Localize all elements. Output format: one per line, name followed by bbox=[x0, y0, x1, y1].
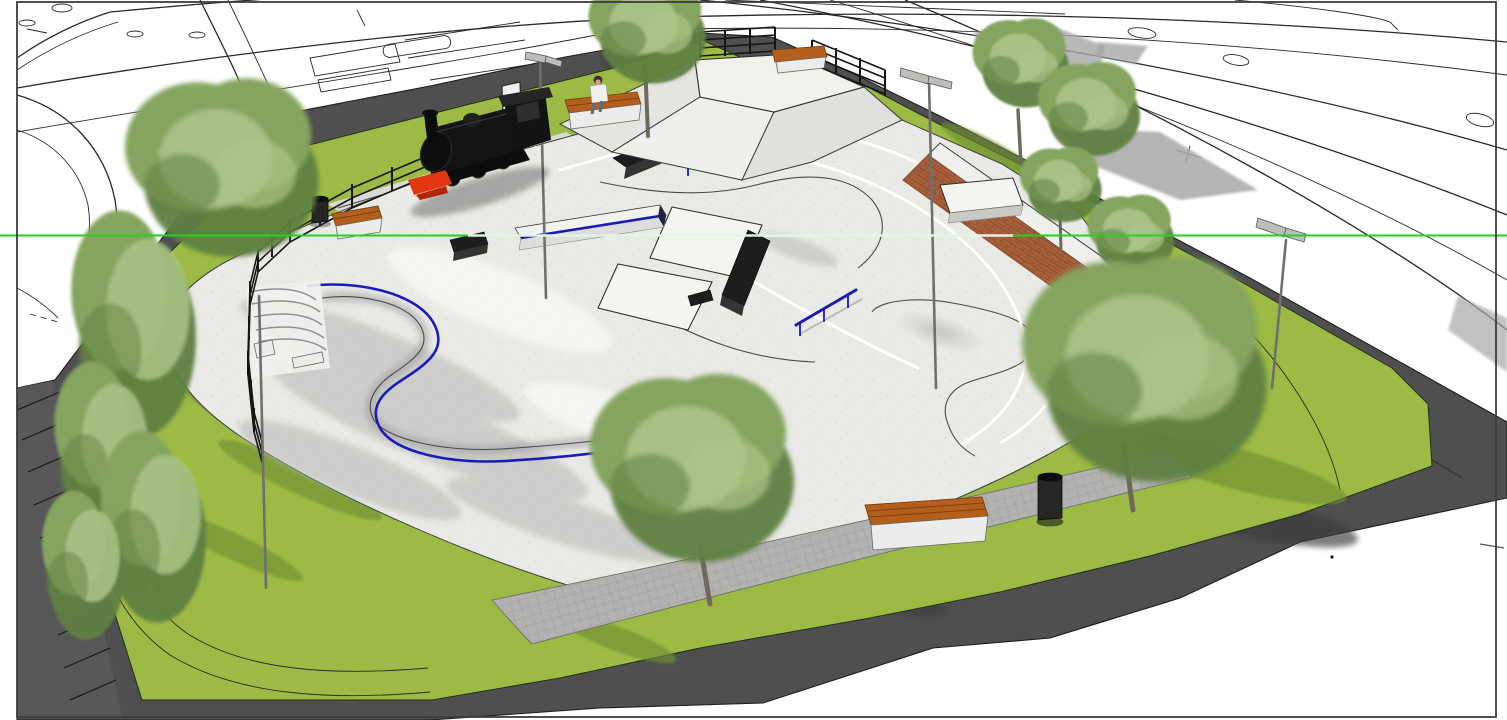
manual-pad bbox=[940, 178, 1023, 223]
render-viewport: Skatepark concept - aerial 3D render wit… bbox=[0, 0, 1507, 720]
litter-bin-walkway bbox=[1037, 473, 1063, 526]
pyramid-bench bbox=[772, 46, 827, 73]
skatepark-render: Skatepark concept - aerial 3D render wit… bbox=[0, 0, 1507, 720]
bench-bottom bbox=[865, 497, 988, 550]
